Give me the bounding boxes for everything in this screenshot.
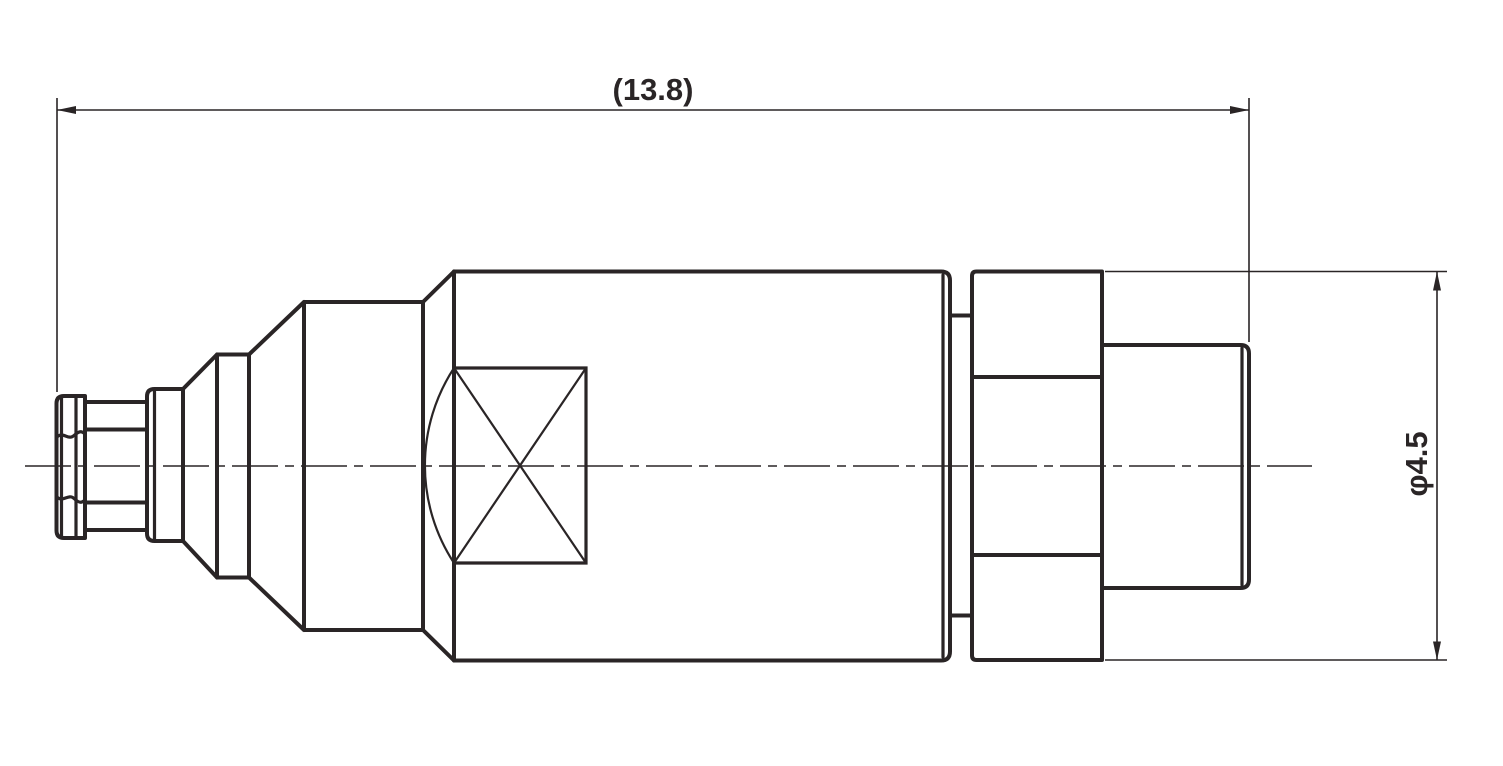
length-extension-lines (57, 98, 1249, 392)
interface-tip (57, 396, 148, 538)
diameter-arrow-top (1433, 272, 1441, 291)
pin-bar-bottom (85, 503, 147, 531)
length-arrow-right (1230, 106, 1249, 114)
step-1 (147, 389, 183, 541)
length-arrow-left (57, 106, 76, 114)
diameter-arrow-bottom (1433, 642, 1441, 661)
length-dimension-label: (13.8) (613, 72, 694, 107)
length-dimension: (13.8) (57, 72, 1249, 392)
diameter-dimension-label: φ4.5 (1399, 431, 1434, 496)
drawing-canvas: (13.8) φ4.5 (0, 0, 1503, 766)
connector-technical-drawing: (13.8) φ4.5 (0, 0, 1503, 766)
pin-bar-top (85, 402, 147, 430)
